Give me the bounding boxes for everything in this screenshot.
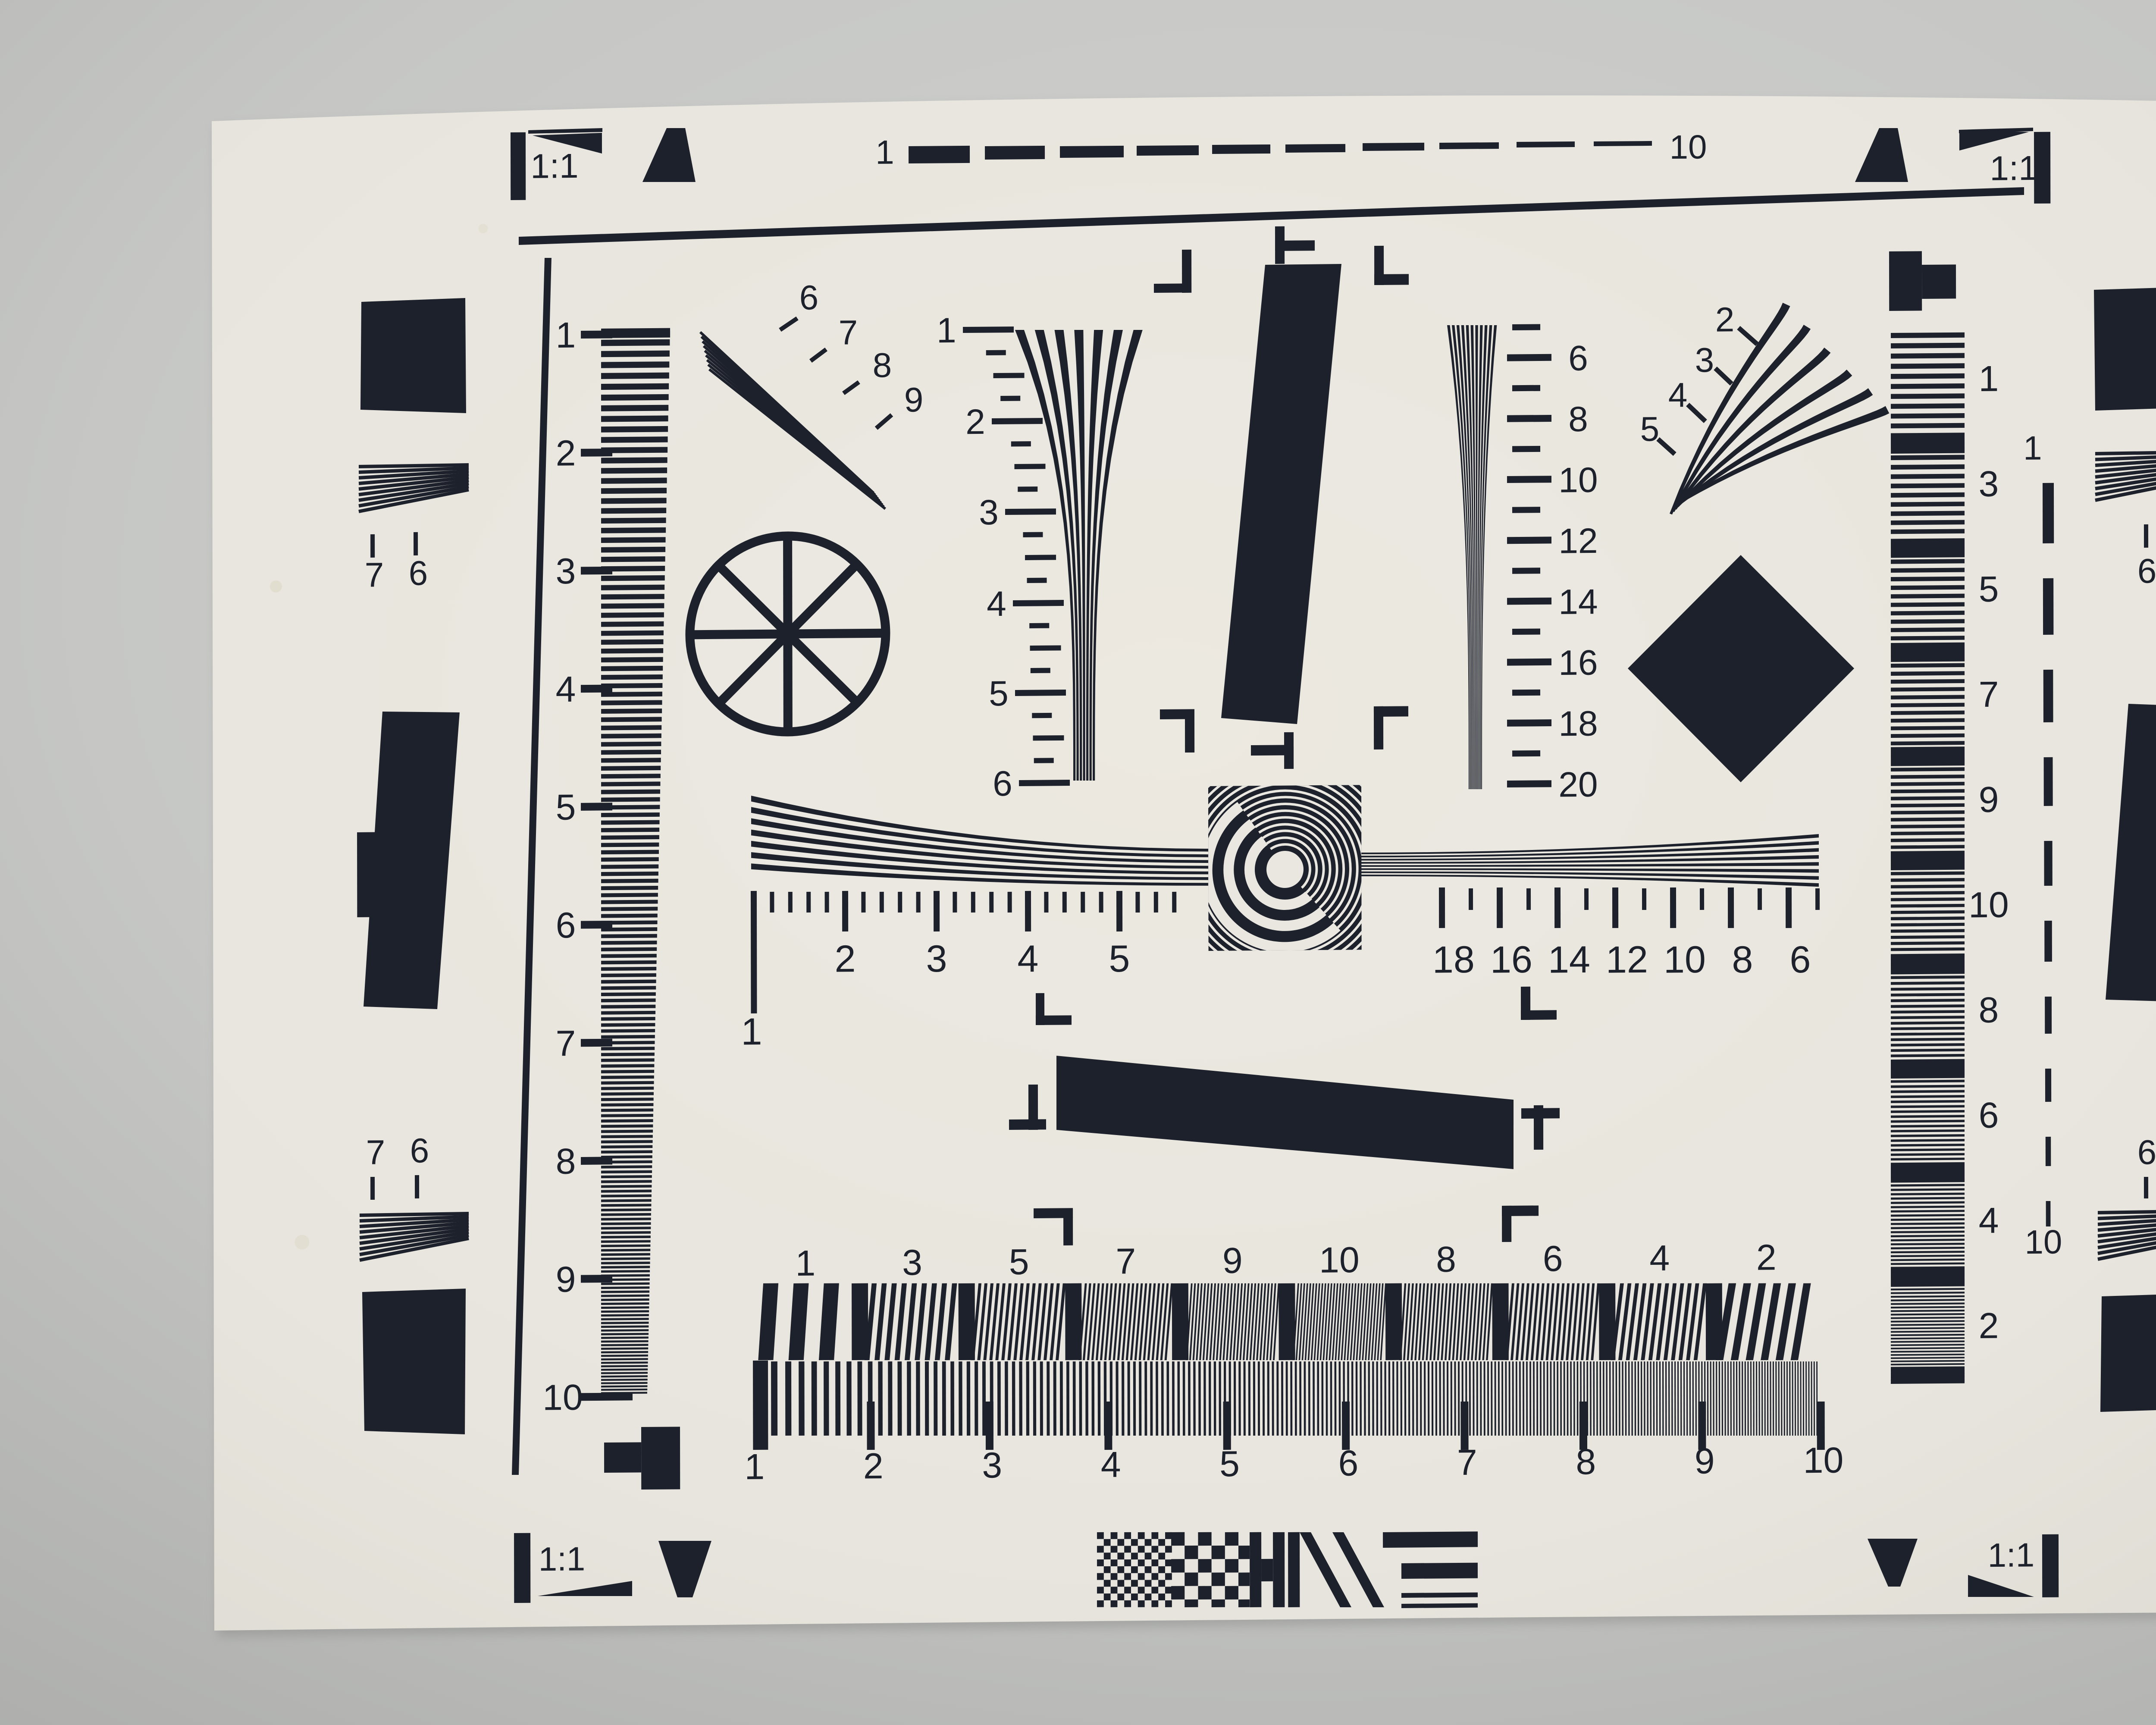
svg-text:1: 1	[745, 1446, 765, 1487]
svg-text:3: 3	[979, 493, 999, 532]
svg-text:3: 3	[982, 1445, 1002, 1485]
svg-text:6: 6	[556, 905, 576, 945]
svg-text:1: 1	[796, 1243, 816, 1283]
svg-text:3: 3	[902, 1242, 922, 1283]
svg-text:6: 6	[993, 764, 1012, 803]
svg-text:8: 8	[1576, 1441, 1596, 1482]
svg-text:10: 10	[1803, 1440, 1844, 1481]
svg-text:2: 2	[834, 937, 856, 980]
svg-text:7: 7	[366, 1133, 385, 1171]
svg-text:2: 2	[965, 402, 985, 442]
svg-text:1:1: 1:1	[1988, 1536, 2035, 1574]
svg-text:7: 7	[839, 313, 858, 351]
svg-text:3: 3	[926, 937, 947, 980]
svg-text:16: 16	[1490, 938, 1532, 981]
svg-text:7: 7	[1457, 1442, 1477, 1483]
svg-text:16: 16	[1558, 643, 1598, 683]
svg-text:5: 5	[1109, 937, 1130, 980]
svg-text:7: 7	[1979, 674, 1999, 715]
svg-text:6: 6	[2137, 1133, 2156, 1171]
svg-text:8: 8	[1436, 1239, 1456, 1280]
svg-text:3: 3	[556, 551, 576, 591]
svg-text:1: 1	[741, 1010, 762, 1053]
svg-text:6: 6	[1979, 1095, 1999, 1135]
svg-text:5: 5	[1219, 1443, 1240, 1484]
svg-text:1: 1	[1979, 358, 1999, 399]
svg-text:5: 5	[1979, 569, 1999, 609]
svg-text:4: 4	[556, 669, 576, 709]
svg-text:5: 5	[989, 674, 1009, 713]
svg-text:14: 14	[1548, 938, 1590, 981]
svg-text:4: 4	[1017, 937, 1038, 980]
svg-text:8: 8	[556, 1141, 576, 1182]
svg-text:7: 7	[556, 1023, 576, 1063]
svg-text:7: 7	[1116, 1241, 1136, 1281]
svg-text:10: 10	[1670, 128, 1707, 166]
svg-text:2: 2	[863, 1446, 884, 1486]
svg-text:3: 3	[1979, 464, 1999, 504]
svg-text:8: 8	[873, 346, 892, 384]
svg-text:6: 6	[410, 1131, 429, 1170]
svg-text:1:1: 1:1	[1990, 149, 2037, 188]
svg-text:3: 3	[1695, 341, 1714, 379]
svg-text:14: 14	[1558, 582, 1598, 622]
svg-text:2: 2	[1756, 1237, 1777, 1277]
svg-text:12: 12	[1558, 521, 1598, 561]
svg-text:18: 18	[1558, 704, 1598, 744]
svg-text:2: 2	[1979, 1305, 1999, 1346]
svg-text:8: 8	[1732, 938, 1753, 981]
svg-text:5: 5	[1009, 1242, 1029, 1282]
svg-text:5: 5	[556, 787, 576, 827]
svg-text:4: 4	[1979, 1200, 1999, 1241]
svg-text:2: 2	[1715, 300, 1735, 339]
svg-text:1: 1	[875, 133, 894, 171]
svg-text:6: 6	[1789, 938, 1811, 981]
svg-text:9: 9	[1979, 779, 1999, 820]
svg-text:7: 7	[365, 555, 384, 594]
svg-text:1:1: 1:1	[530, 147, 578, 185]
svg-text:6: 6	[2137, 552, 2156, 590]
svg-text:10: 10	[2025, 1223, 2062, 1261]
svg-text:9: 9	[1695, 1440, 1715, 1481]
svg-text:12: 12	[1606, 938, 1648, 981]
svg-text:1: 1	[2023, 429, 2042, 467]
svg-text:8: 8	[1568, 400, 1588, 439]
svg-text:2: 2	[556, 433, 576, 473]
svg-text:10: 10	[1664, 938, 1706, 981]
svg-text:6: 6	[409, 554, 428, 592]
svg-text:8: 8	[1979, 990, 1999, 1030]
svg-text:10: 10	[542, 1377, 583, 1418]
svg-text:9: 9	[1222, 1240, 1243, 1281]
svg-text:6: 6	[1543, 1238, 1563, 1279]
svg-text:18: 18	[1432, 938, 1475, 981]
svg-text:10: 10	[1558, 461, 1598, 500]
svg-text:4: 4	[987, 584, 1006, 624]
svg-text:6: 6	[1568, 339, 1588, 378]
svg-text:1:1: 1:1	[539, 1540, 586, 1578]
svg-text:9: 9	[904, 380, 924, 419]
svg-text:9: 9	[556, 1259, 576, 1299]
svg-text:10: 10	[1968, 884, 2009, 925]
svg-text:1: 1	[556, 315, 576, 355]
svg-text:4: 4	[1649, 1238, 1670, 1278]
svg-text:6: 6	[799, 278, 819, 317]
svg-text:4: 4	[1668, 376, 1688, 414]
svg-text:6: 6	[1338, 1443, 1359, 1483]
svg-text:20: 20	[1558, 765, 1598, 805]
svg-text:10: 10	[1319, 1239, 1360, 1280]
svg-text:5: 5	[1640, 410, 1660, 448]
svg-text:4: 4	[1101, 1444, 1121, 1485]
svg-text:1: 1	[937, 311, 956, 350]
